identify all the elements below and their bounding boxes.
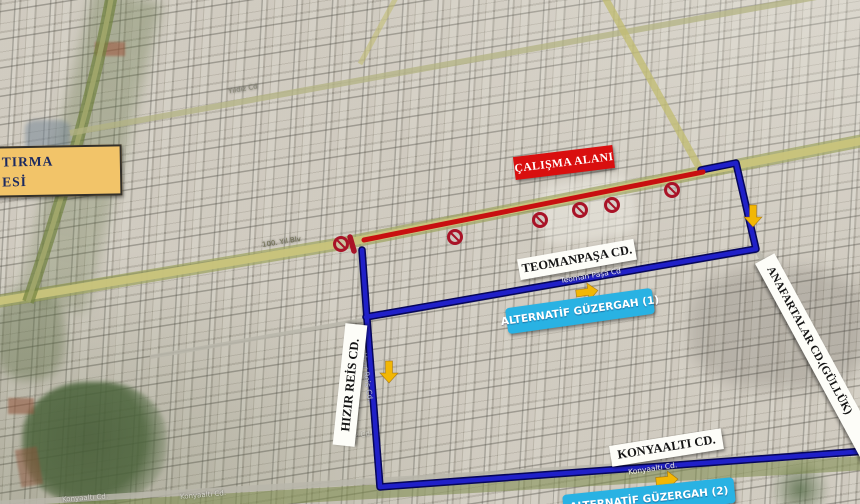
hospital-label: TIRMA ESİ [0, 144, 122, 198]
work-zone-line [364, 172, 703, 240]
hospital-label-line2: ESİ [2, 172, 27, 192]
map-overlay [0, 0, 860, 504]
direction-arrow-down-hizir-reis [380, 361, 398, 383]
alt-route-east-casing [366, 163, 756, 317]
satellite-road-closure-map: 100. Yıl Blv Yıldız Cd Teoman Paşa Cd Hı… [0, 0, 860, 504]
alt-route-east-line [366, 163, 756, 317]
closure-bar-marker [350, 237, 354, 251]
road-top-small [360, 0, 398, 64]
road-yildiz [70, 0, 860, 133]
hospital-label-line1: TIRMA [2, 152, 54, 172]
